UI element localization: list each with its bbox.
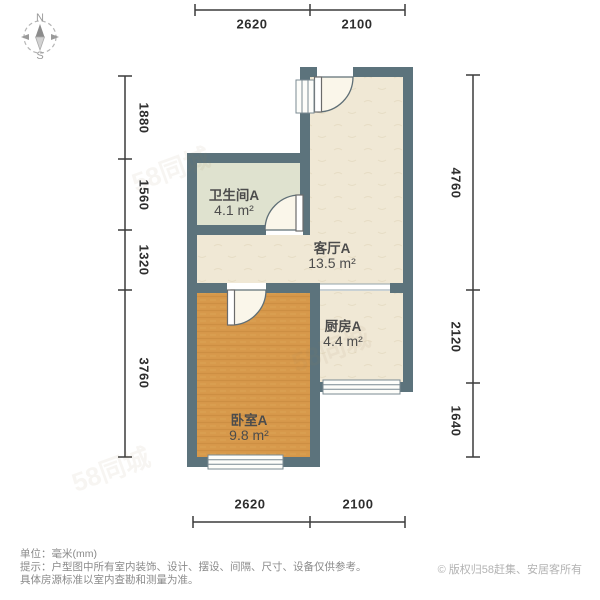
living-room-window-left [296, 80, 314, 113]
dimension-line-bottom [193, 516, 405, 528]
compass-east-arrow [51, 34, 59, 40]
living-kitchen-opening [320, 284, 390, 290]
compass [21, 21, 59, 53]
wall-right [403, 67, 413, 392]
kitchen-name: 厨房A [323, 319, 363, 334]
compass-west-arrow [21, 34, 29, 40]
dim-right-3: 1640 [449, 406, 464, 437]
bedroom-name: 卧室A [229, 413, 269, 428]
wall-bedroom-right [310, 283, 320, 467]
wall-top [300, 67, 413, 77]
compass-needle-north [36, 24, 45, 37]
bedroom-area: 9.8 m² [229, 428, 269, 443]
compass-needle-south [36, 37, 45, 50]
wall-bathroom-top [187, 153, 310, 163]
dimension-line-left [118, 76, 132, 457]
dim-bottom-2: 2100 [343, 497, 374, 512]
kitchen-area: 4.4 m² [323, 334, 363, 349]
footer-unit-line: 单位：毫米(mm) [20, 548, 97, 561]
wall-left-exterior [187, 163, 197, 467]
dimension-line-top [195, 4, 405, 16]
compass-north-label: N [36, 12, 44, 24]
dim-left-2: 1560 [137, 180, 152, 211]
dim-left-3: 1320 [137, 245, 152, 276]
room-label-bedroom: 卧室A 9.8 m² [229, 413, 269, 443]
bathroom-name: 卫生间A [209, 188, 259, 203]
living-room-floor-lower [197, 235, 310, 283]
dim-top-2: 2100 [342, 17, 373, 32]
floorplan-drawing [0, 0, 600, 600]
dim-bottom-1: 2620 [235, 497, 266, 512]
bedroom-window-bottom [208, 455, 283, 469]
dim-right-2: 2120 [449, 322, 464, 353]
room-label-kitchen: 厨房A 4.4 m² [323, 319, 363, 349]
dimension-line-right [466, 75, 480, 457]
footer-hint-line1: 提示：户型图中所有室内装饰、设计、摆设、间隔、尺寸、设备仅供参考。 [20, 561, 367, 574]
dim-left-1: 1880 [137, 103, 152, 134]
living-area: 13.5 m² [308, 256, 355, 271]
living-name: 客厅A [308, 241, 355, 256]
footer-copyright: © 版权归58赶集、安居客所有 [438, 561, 582, 577]
dim-right-1: 4760 [449, 168, 464, 199]
kitchen-window-bottom [323, 380, 400, 394]
room-label-living: 客厅A 13.5 m² [308, 241, 355, 271]
wall-stub-kitchen [390, 283, 403, 293]
dim-top-1: 2620 [237, 17, 268, 32]
compass-south-label: S [36, 50, 43, 62]
room-label-bathroom: 卫生间A 4.1 m² [209, 188, 259, 218]
bathroom-area: 4.1 m² [209, 203, 259, 218]
floorplan-page: 58同城 58同城 58同城 N S 2620 2100 2620 2100 1… [0, 0, 600, 600]
dim-left-4: 3760 [137, 358, 152, 389]
footer-hint-line2: 具体房源标准以室内查勘和测量为准。 [20, 574, 199, 587]
